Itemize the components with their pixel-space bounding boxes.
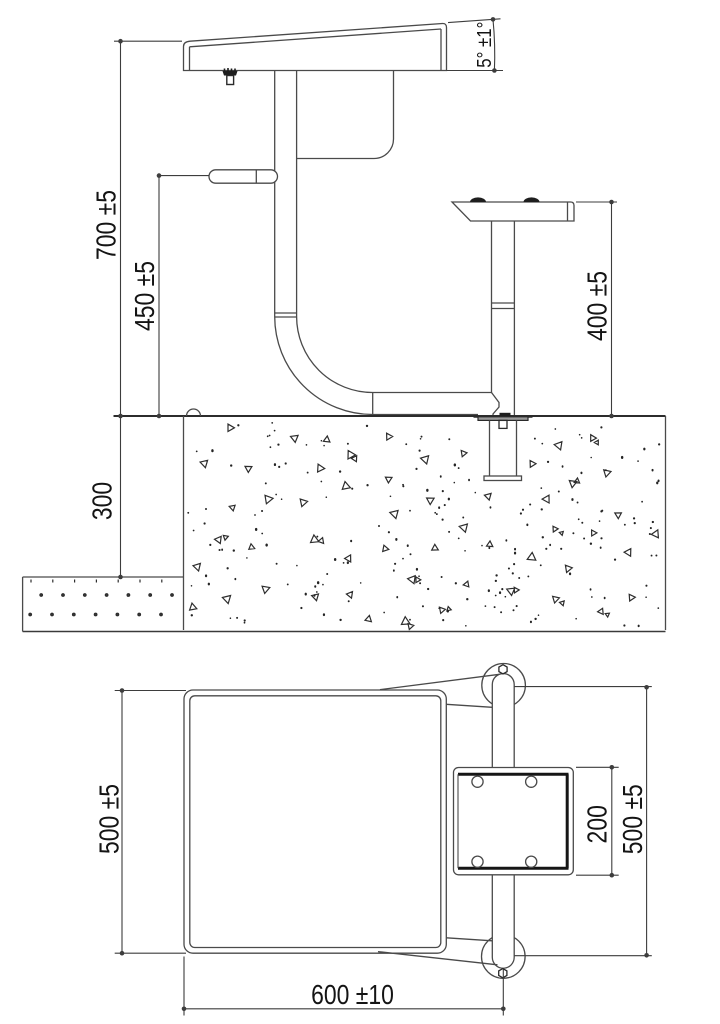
svg-text:500 ±5: 500 ±5: [618, 784, 649, 854]
svg-text:500 ±5: 500 ±5: [94, 784, 125, 854]
svg-text:450 ±5: 450 ±5: [130, 261, 161, 331]
svg-text:700 ±5: 700 ±5: [91, 190, 122, 260]
svg-text:400 ±5: 400 ±5: [582, 271, 613, 341]
svg-text:300: 300: [87, 482, 118, 520]
svg-text:5° ±1°: 5° ±1°: [472, 22, 495, 68]
svg-text:600 ±10: 600 ±10: [311, 980, 394, 1011]
svg-text:200: 200: [582, 805, 613, 843]
